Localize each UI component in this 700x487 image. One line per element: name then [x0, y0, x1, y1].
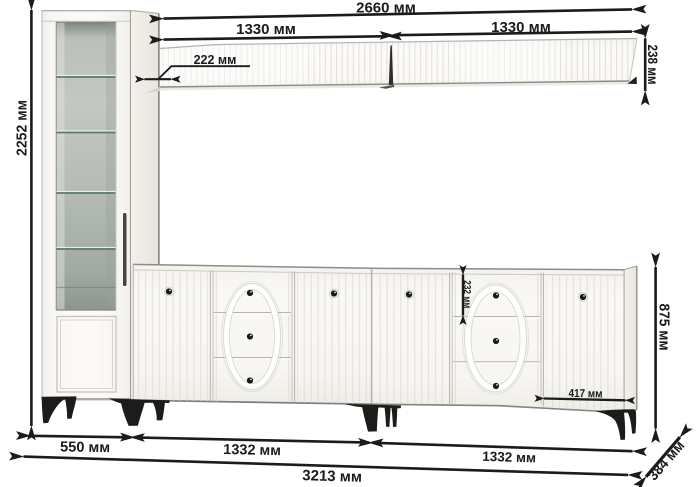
svg-text:2252 мм: 2252 мм — [14, 100, 31, 156]
svg-text:1330 мм: 1330 мм — [236, 21, 296, 38]
svg-text:1332 мм: 1332 мм — [482, 449, 536, 466]
svg-text:550 мм: 550 мм — [60, 439, 110, 456]
svg-text:232 мм: 232 мм — [461, 280, 473, 308]
svg-text:1330 мм: 1330 мм — [491, 19, 551, 36]
svg-text:2660 мм: 2660 мм — [356, 0, 416, 17]
svg-text:222 мм: 222 мм — [194, 53, 237, 67]
svg-text:3213 мм: 3213 мм — [302, 467, 362, 486]
svg-text:238 мм: 238 мм — [645, 45, 661, 85]
svg-text:417 мм: 417 мм — [568, 388, 602, 401]
svg-text:1332 мм: 1332 мм — [223, 442, 281, 459]
svg-text:875 мм: 875 мм — [656, 304, 673, 351]
